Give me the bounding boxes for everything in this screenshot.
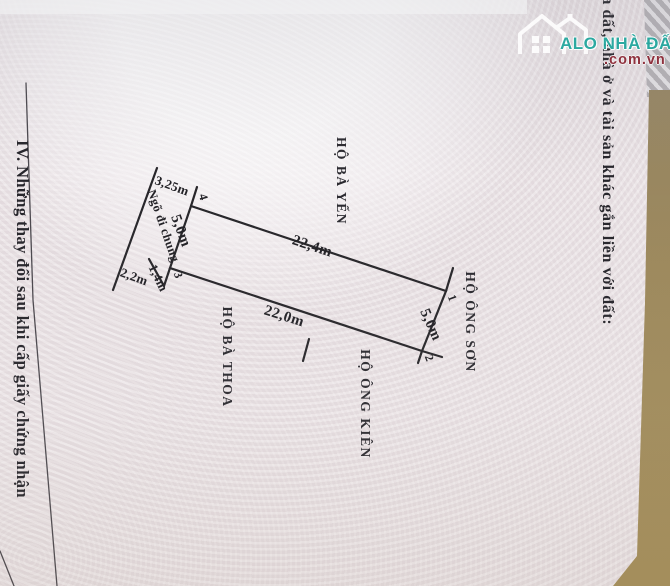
neighbor-top: HỘ BÀ YẾN bbox=[333, 137, 349, 225]
logo-domain: .com.vn bbox=[604, 52, 666, 68]
corner1-tick bbox=[446, 268, 453, 291]
boundary-mark-tick bbox=[303, 339, 309, 361]
logo-text: ALO NHÀ ĐẤT bbox=[560, 34, 670, 54]
plot-diagram bbox=[0, 0, 670, 586]
neighbor-bottom-left: HỘ BÀ THOA bbox=[219, 306, 235, 407]
plot-boundary bbox=[170, 206, 446, 351]
neighbor-bottom-right: HỘ ÔNG KIÊN bbox=[357, 349, 373, 459]
neighbor-right: HỘ ÔNG SƠN bbox=[462, 271, 478, 372]
table-rule-left bbox=[0, 551, 14, 586]
certificate-photo: 22,4m 22,0m 5,0m 5,0m 3,25m 2,2m 1,4m Ng… bbox=[0, 0, 670, 586]
watermark-logo: ALO NHÀ ĐẤT .com.vn bbox=[508, 2, 670, 78]
section-iv-header: IV. Những thay đổi sau khi cấp giấy chứn… bbox=[12, 140, 32, 498]
